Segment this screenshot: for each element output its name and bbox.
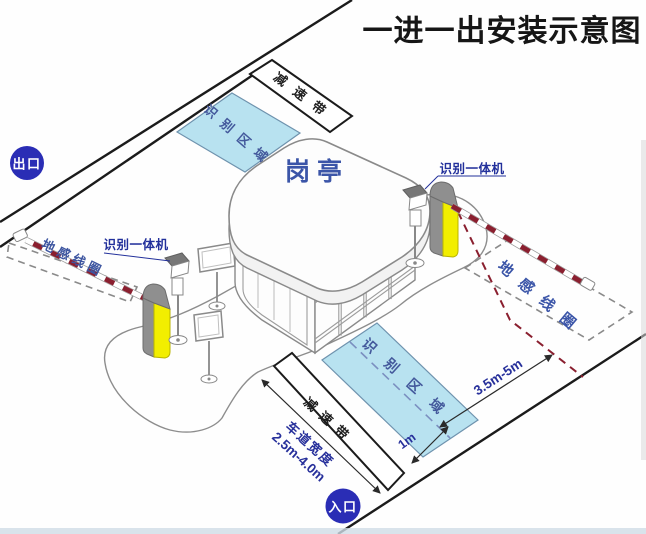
booth-label: 岗亭 <box>285 157 349 186</box>
right-edge-strip <box>641 140 646 460</box>
exit-badge: 出口 <box>10 146 44 180</box>
diagram-canvas: 减速带 识别区域 减速带 车道宽度 2.5m-4.0m 识别区域 1m 地感线圈 <box>0 0 646 534</box>
svg-text:识别一体机: 识别一体机 <box>103 237 168 252</box>
diagram-title: 一进一出安装示意图 <box>363 14 642 48</box>
exit-badge-label: 出口 <box>12 157 41 172</box>
svg-text:识别一体机: 识别一体机 <box>439 161 504 176</box>
entry-badge: 入口 <box>326 489 361 524</box>
entry-badge-label: 入口 <box>328 500 357 515</box>
installation-diagram: 减速带 识别区域 减速带 车道宽度 2.5m-4.0m 识别区域 1m 地感线圈 <box>0 0 646 534</box>
barrier-gate-exit <box>143 284 170 358</box>
barrier-gate-entry <box>430 182 458 257</box>
bottom-edge-strip <box>0 528 646 534</box>
